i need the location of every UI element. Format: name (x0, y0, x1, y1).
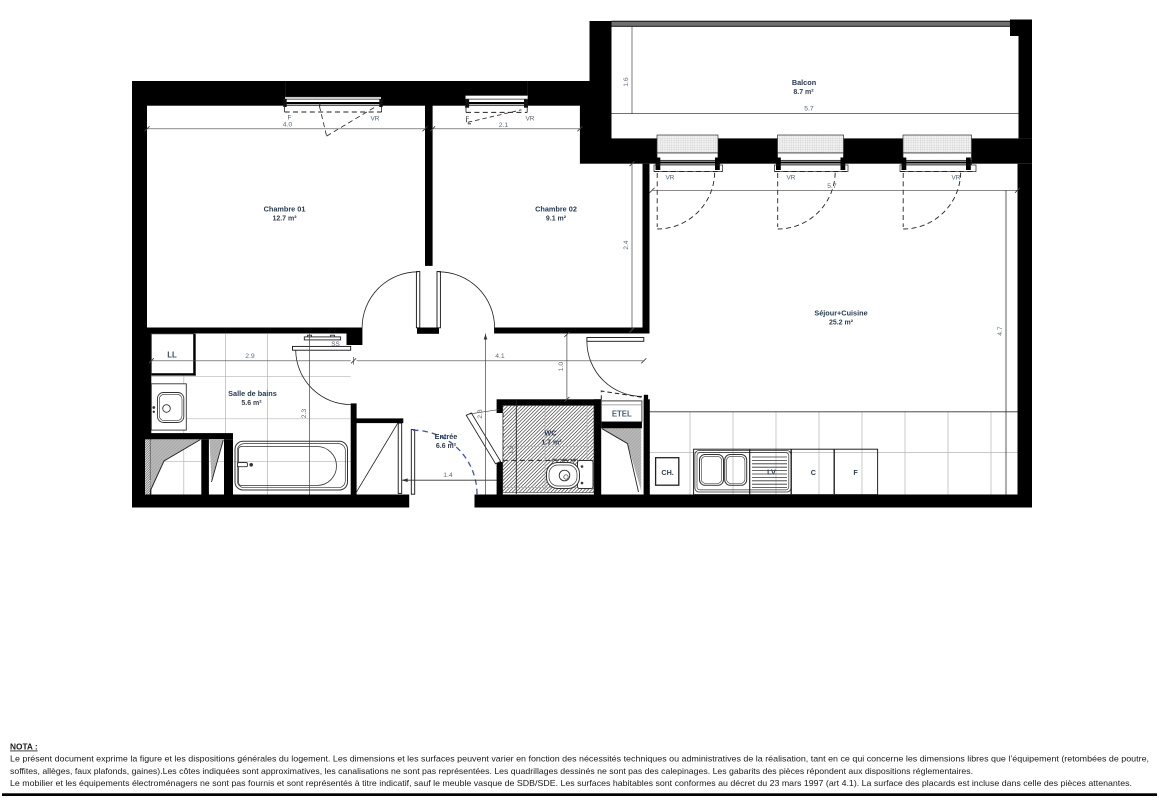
svg-text:VR: VR (371, 116, 380, 123)
svg-text:VR: VR (666, 175, 675, 182)
svg-text:2.1: 2.1 (499, 122, 509, 129)
svg-text:8.7 m²: 8.7 m² (793, 89, 814, 96)
svg-text:6.6 m²: 6.6 m² (436, 443, 457, 450)
svg-text:Entrée: Entrée (435, 432, 458, 441)
svg-text:F: F (853, 468, 858, 477)
svg-text:F: F (288, 114, 292, 121)
svg-text:Chambre 01: Chambre 01 (264, 205, 306, 214)
svg-text:2.9: 2.9 (245, 353, 255, 360)
svg-text:NOTA :: NOTA : (10, 742, 38, 752)
svg-text:C: C (811, 468, 816, 477)
svg-text:VR: VR (952, 175, 961, 182)
svg-text:WC: WC (544, 429, 557, 438)
svg-text:VR: VR (787, 175, 796, 182)
svg-text:4.0: 4.0 (283, 122, 293, 129)
svg-text:1.7 m²: 1.7 m² (541, 439, 562, 446)
svg-text:1.4: 1.4 (443, 472, 453, 479)
svg-text:Balcon: Balcon (792, 78, 816, 87)
svg-text:1.0: 1.0 (558, 362, 565, 372)
svg-text:2.3: 2.3 (477, 409, 484, 419)
svg-text:CH.: CH. (661, 468, 673, 477)
svg-text:soffites, allèges, faux plafon: soffites, allèges, faux plafonds, gaines… (10, 766, 973, 776)
svg-text:Le mobilier et les équipements: Le mobilier et les équipements électromé… (10, 778, 1132, 788)
svg-text:Chambre 02: Chambre 02 (535, 205, 577, 214)
svg-text:9.1 m²: 9.1 m² (546, 216, 567, 223)
svg-text:2.4: 2.4 (623, 240, 630, 250)
svg-text:12.7 m²: 12.7 m² (272, 216, 297, 223)
svg-text:2.3: 2.3 (301, 409, 308, 419)
svg-text:5.6 m²: 5.6 m² (241, 400, 262, 407)
svg-text:5.7: 5.7 (827, 183, 837, 190)
svg-text:25.2 m²: 25.2 m² (829, 320, 854, 327)
svg-text:Séjour+Cuisine: Séjour+Cuisine (814, 309, 867, 318)
svg-text:VR: VR (526, 116, 535, 123)
svg-text:5.7: 5.7 (804, 106, 814, 113)
svg-text:SS: SS (331, 341, 340, 348)
svg-text:LV: LV (767, 468, 776, 477)
svg-text:1.3: 1.3 (508, 445, 515, 455)
svg-text:4.7: 4.7 (997, 326, 1004, 336)
svg-text:4.1: 4.1 (495, 353, 505, 360)
svg-text:F: F (466, 116, 470, 123)
svg-text:Le présent document exprime la: Le présent document exprime la figure et… (10, 754, 1149, 764)
svg-text:Salle de bains: Salle de bains (228, 389, 277, 398)
svg-text:1.6: 1.6 (623, 77, 630, 87)
svg-text:ETEL: ETEL (612, 410, 632, 419)
svg-text:LL: LL (167, 351, 177, 360)
